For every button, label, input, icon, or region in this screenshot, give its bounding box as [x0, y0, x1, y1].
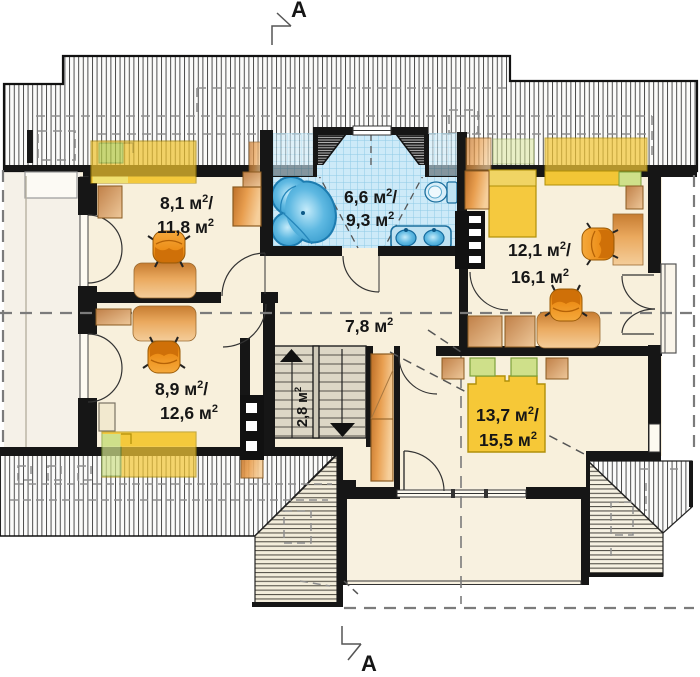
- svg-text:15,5 м2: 15,5 м2: [479, 430, 537, 450]
- svg-text:A: A: [291, 0, 307, 22]
- svg-text:A: A: [361, 651, 377, 672]
- svg-text:7,8 м2: 7,8 м2: [345, 316, 393, 336]
- svg-text:12,6 м2: 12,6 м2: [160, 403, 218, 423]
- svg-text:2,8 м2: 2,8 м2: [293, 387, 311, 427]
- svg-text:11,8 м2: 11,8 м2: [157, 217, 214, 237]
- svg-text:16,1 м2: 16,1 м2: [511, 267, 569, 287]
- svg-text:9,3 м2: 9,3 м2: [346, 210, 394, 230]
